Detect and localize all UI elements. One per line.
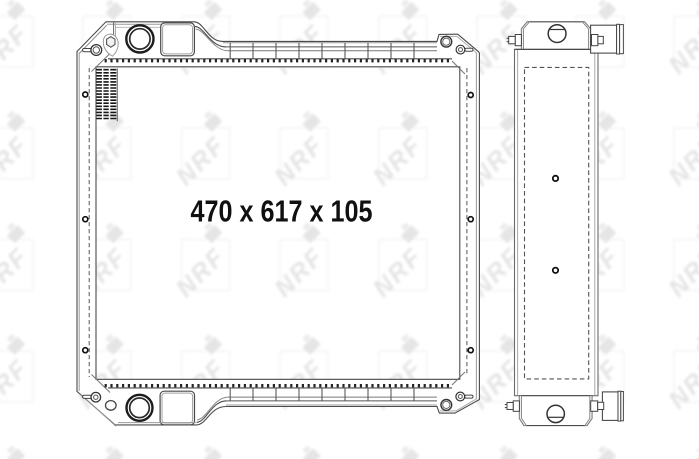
svg-text:NRF: NRF bbox=[269, 242, 329, 302]
svg-text:NRF: NRF bbox=[171, 131, 231, 191]
svg-text:NRF: NRF bbox=[663, 354, 699, 414]
svg-text:NRF: NRF bbox=[368, 131, 428, 191]
svg-text:470 x 617 x 105: 470 x 617 x 105 bbox=[191, 194, 373, 229]
svg-text:NRF: NRF bbox=[0, 131, 34, 191]
svg-text:NRF: NRF bbox=[171, 242, 231, 302]
svg-text:NRF: NRF bbox=[663, 131, 699, 191]
svg-text:NRF: NRF bbox=[0, 19, 34, 79]
svg-text:NRF: NRF bbox=[269, 131, 329, 191]
svg-text:NRF: NRF bbox=[0, 242, 34, 302]
svg-text:NRF: NRF bbox=[0, 354, 34, 414]
svg-text:NRF: NRF bbox=[663, 19, 699, 79]
svg-text:NRF: NRF bbox=[368, 242, 428, 302]
svg-text:NRF: NRF bbox=[663, 242, 699, 302]
